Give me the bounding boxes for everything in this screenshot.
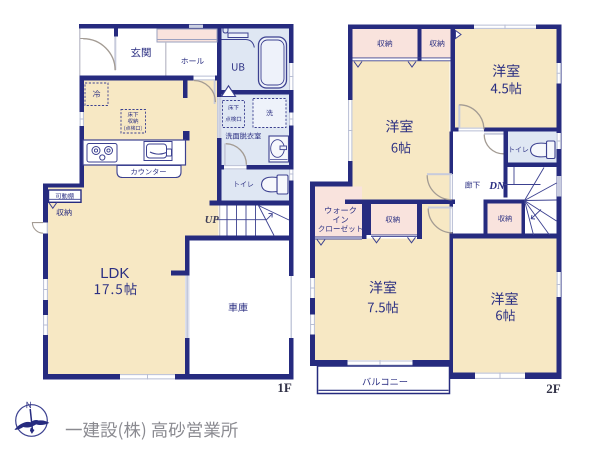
svg-text:LDK: LDK [100,265,129,282]
svg-text:2F: 2F [546,381,561,396]
svg-text:UP: UP [205,215,220,226]
svg-text:1F: 1F [277,380,292,395]
svg-text:DN: DN [488,181,505,192]
